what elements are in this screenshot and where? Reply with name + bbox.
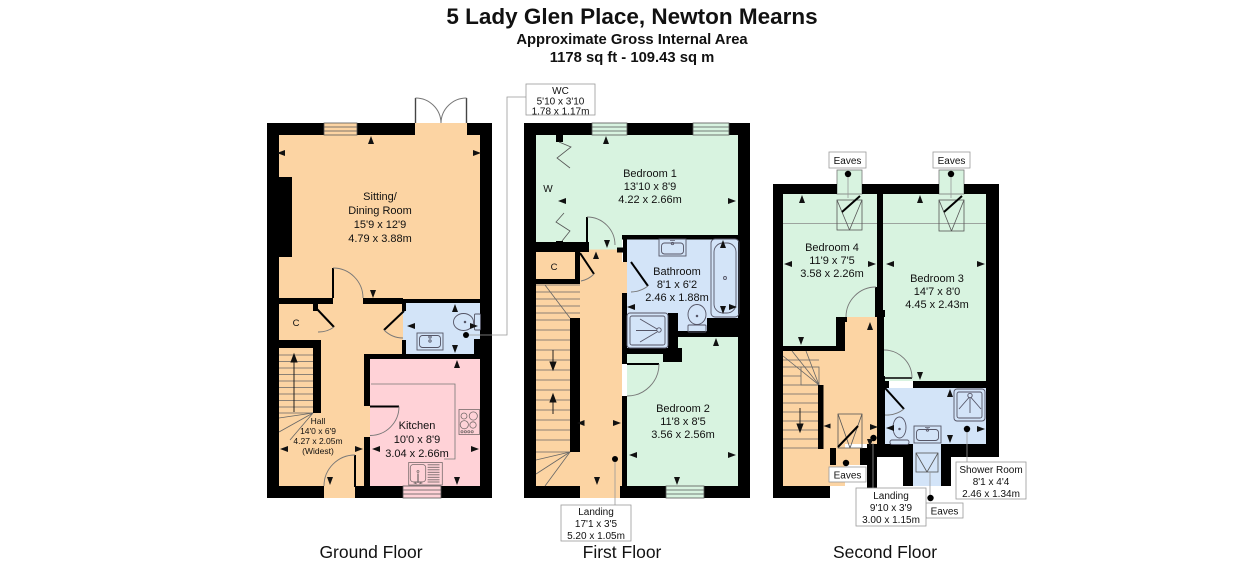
svg-text:Dining Room: Dining Room bbox=[348, 205, 412, 217]
svg-text:Ground Floor: Ground Floor bbox=[319, 542, 422, 562]
svg-text:13'10 x 8'9: 13'10 x 8'9 bbox=[624, 181, 677, 193]
svg-text:(Widest): (Widest) bbox=[302, 446, 334, 456]
svg-text:Eaves: Eaves bbox=[834, 471, 862, 482]
svg-text:Bedroom 2: Bedroom 2 bbox=[656, 403, 710, 415]
svg-text:3.58 x 2.26m: 3.58 x 2.26m bbox=[800, 268, 864, 280]
svg-text:8'1 x 4'4: 8'1 x 4'4 bbox=[973, 477, 1010, 488]
svg-text:5.20 x 1.05m: 5.20 x 1.05m bbox=[567, 531, 625, 542]
svg-text:11'9 x 7'5: 11'9 x 7'5 bbox=[809, 255, 855, 267]
svg-text:10'0 x 8'9: 10'0 x 8'9 bbox=[394, 434, 440, 446]
svg-text:Kitchen: Kitchen bbox=[399, 420, 436, 432]
svg-text:C: C bbox=[551, 262, 558, 273]
svg-text:Bedroom 3: Bedroom 3 bbox=[910, 273, 964, 285]
svg-text:C: C bbox=[293, 318, 300, 329]
svg-text:Eaves: Eaves bbox=[938, 156, 966, 167]
svg-text:14'0 x 6'9: 14'0 x 6'9 bbox=[300, 426, 336, 436]
svg-text:Bedroom 4: Bedroom 4 bbox=[805, 242, 859, 254]
svg-text:2.46 x 1.88m: 2.46 x 1.88m bbox=[645, 292, 709, 304]
svg-text:First Floor: First Floor bbox=[583, 542, 662, 562]
svg-text:4.79 x 3.88m: 4.79 x 3.88m bbox=[348, 233, 412, 245]
svg-text:1178 sq ft - 109.43 sq m: 1178 sq ft - 109.43 sq m bbox=[550, 50, 715, 66]
svg-text:Shower Room: Shower Room bbox=[959, 465, 1022, 476]
svg-text:3.56 x 2.56m: 3.56 x 2.56m bbox=[651, 429, 715, 441]
svg-text:Sitting/: Sitting/ bbox=[363, 191, 398, 203]
svg-text:Hall: Hall bbox=[311, 416, 326, 426]
svg-text:4.45 x 2.43m: 4.45 x 2.43m bbox=[905, 299, 969, 311]
svg-text:5 Lady Glen Place, Newton Mear: 5 Lady Glen Place, Newton Mearns bbox=[446, 4, 817, 29]
svg-text:Eaves: Eaves bbox=[834, 156, 862, 167]
svg-text:Landing: Landing bbox=[578, 507, 614, 518]
svg-text:11'8 x 8'5: 11'8 x 8'5 bbox=[660, 416, 706, 428]
svg-text:Second Floor: Second Floor bbox=[833, 542, 937, 562]
svg-text:9'10 x 3'9: 9'10 x 3'9 bbox=[870, 503, 913, 514]
svg-text:4.27 x 2.05m: 4.27 x 2.05m bbox=[293, 436, 342, 446]
svg-text:Eaves: Eaves bbox=[931, 507, 959, 518]
svg-text:4.22 x 2.66m: 4.22 x 2.66m bbox=[618, 194, 682, 206]
svg-text:Landing: Landing bbox=[873, 491, 909, 502]
svg-text:1.78 x 1.17m: 1.78 x 1.17m bbox=[532, 107, 590, 118]
svg-text:3.00 x 1.15m: 3.00 x 1.15m bbox=[862, 515, 920, 526]
svg-text:Bathroom: Bathroom bbox=[653, 266, 701, 278]
svg-text:8'1 x 6'2: 8'1 x 6'2 bbox=[657, 279, 697, 291]
svg-text:WC: WC bbox=[552, 86, 569, 97]
svg-text:2.46 x 1.34m: 2.46 x 1.34m bbox=[962, 489, 1020, 500]
svg-text:15'9 x 12'9: 15'9 x 12'9 bbox=[354, 219, 407, 231]
svg-text:14'7 x 8'0: 14'7 x 8'0 bbox=[914, 286, 960, 298]
svg-text:Approximate Gross Internal Are: Approximate Gross Internal Area bbox=[516, 32, 748, 48]
svg-text:W: W bbox=[543, 184, 553, 195]
svg-text:3.04 x 2.66m: 3.04 x 2.66m bbox=[385, 448, 449, 460]
svg-text:Bedroom 1: Bedroom 1 bbox=[623, 168, 677, 180]
svg-text:17'1 x 3'5: 17'1 x 3'5 bbox=[575, 519, 618, 530]
